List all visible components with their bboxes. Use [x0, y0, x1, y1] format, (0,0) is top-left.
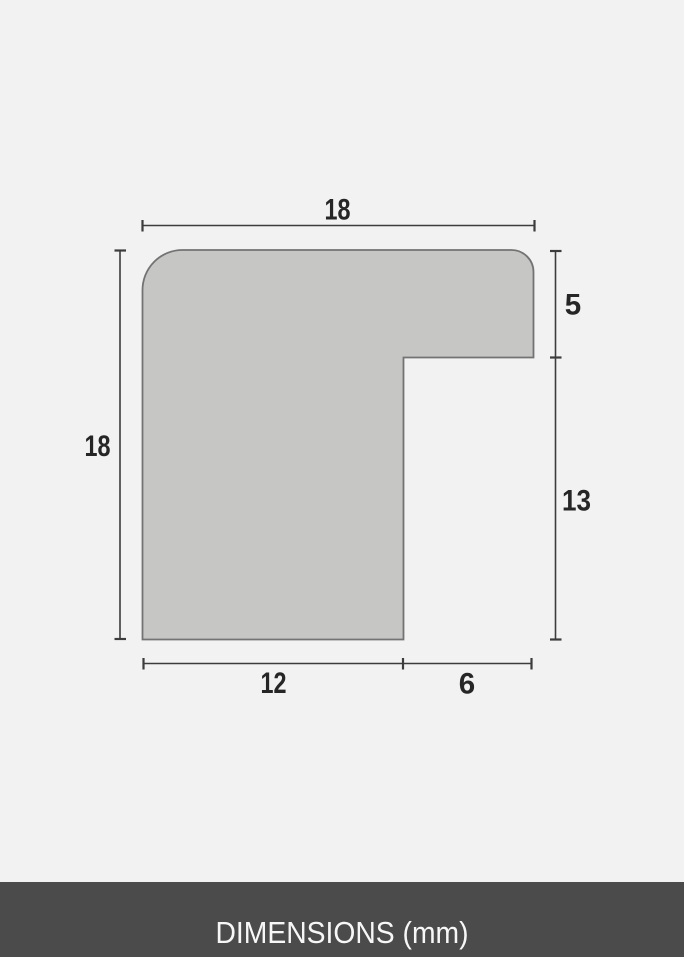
svg-text:18: 18: [85, 430, 111, 463]
svg-text:12: 12: [261, 667, 287, 700]
svg-text:DIMENSIONS (mm): DIMENSIONS (mm): [216, 916, 469, 950]
svg-text:13: 13: [562, 485, 591, 518]
svg-text:18: 18: [325, 194, 351, 227]
svg-text:5: 5: [565, 289, 581, 322]
svg-text:6: 6: [459, 668, 475, 701]
